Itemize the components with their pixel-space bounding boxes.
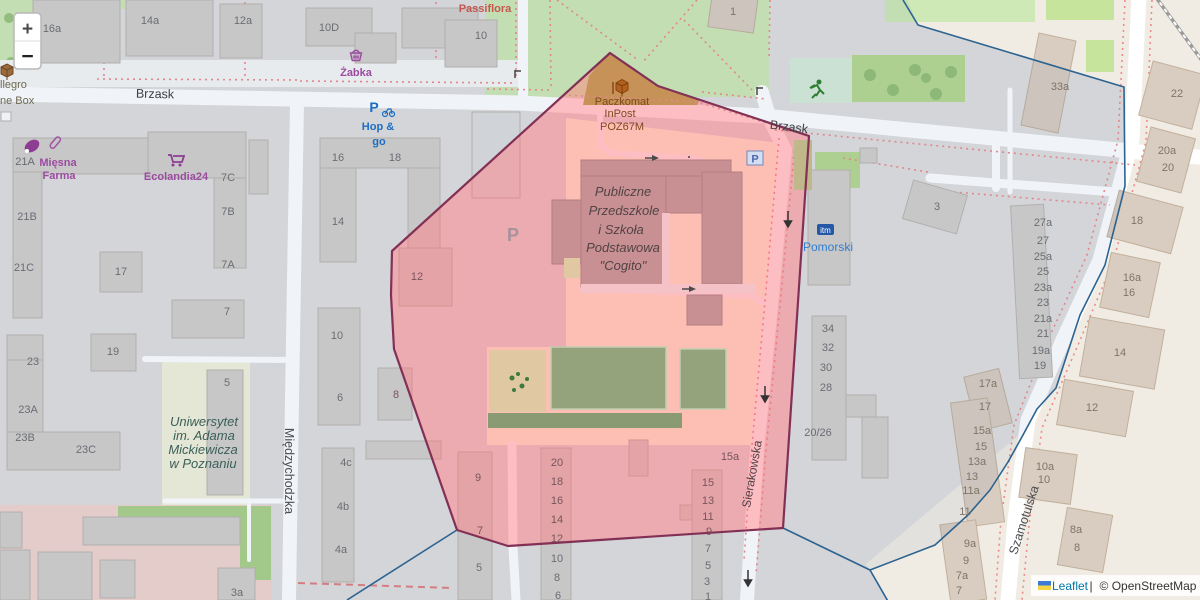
svg-text:4a: 4a [335, 544, 348, 556]
svg-text:14: 14 [551, 514, 563, 526]
svg-text:3: 3 [704, 576, 710, 588]
svg-text:16a: 16a [1123, 272, 1142, 284]
svg-text:POZ67M: POZ67M [600, 121, 644, 133]
svg-text:11a: 11a [962, 485, 980, 497]
svg-text:7a: 7a [956, 570, 969, 582]
svg-text:18: 18 [551, 476, 563, 488]
svg-text:|: | [1089, 579, 1092, 593]
svg-text:Leaflet: Leaflet [1052, 579, 1089, 593]
svg-text:20: 20 [1162, 162, 1174, 174]
svg-text:17a: 17a [979, 378, 998, 390]
svg-text:7B: 7B [221, 206, 234, 218]
svg-text:19: 19 [107, 346, 119, 358]
svg-text:21C: 21C [14, 262, 34, 274]
svg-text:"Cogito": "Cogito" [600, 258, 648, 273]
svg-text:15a: 15a [973, 425, 992, 437]
svg-text:10: 10 [1038, 474, 1050, 486]
svg-text:10D: 10D [319, 22, 339, 34]
svg-text:InPost: InPost [604, 108, 635, 120]
svg-text:1: 1 [730, 6, 736, 18]
svg-text:23: 23 [27, 356, 39, 368]
svg-text:16: 16 [332, 152, 344, 164]
svg-text:28: 28 [820, 382, 832, 394]
svg-text:9: 9 [963, 555, 969, 567]
svg-text:Mickiewicza: Mickiewicza [168, 442, 237, 457]
svg-text:w Poznaniu: w Poznaniu [169, 456, 236, 471]
svg-text:ne Box: ne Box [0, 95, 35, 107]
svg-text:6: 6 [337, 392, 343, 404]
svg-text:8a: 8a [1070, 524, 1083, 536]
svg-text:23A: 23A [18, 404, 38, 416]
svg-text:5: 5 [224, 377, 230, 389]
svg-text:11: 11 [959, 506, 970, 518]
svg-text:1: 1 [705, 591, 711, 600]
svg-text:10: 10 [551, 553, 563, 565]
svg-text:15: 15 [702, 477, 714, 489]
svg-text:18: 18 [1131, 215, 1143, 227]
svg-text:llegro: llegro [0, 79, 27, 91]
svg-text:19a: 19a [1032, 345, 1051, 357]
svg-text:9: 9 [475, 472, 481, 484]
svg-text:6: 6 [555, 590, 561, 600]
svg-text:12: 12 [551, 533, 563, 545]
svg-text:3: 3 [934, 201, 940, 213]
svg-text:7: 7 [956, 585, 962, 597]
svg-text:© OpenStreetMap: © OpenStreetMap [1100, 579, 1197, 593]
svg-text:9a: 9a [964, 538, 977, 550]
svg-text:4b: 4b [337, 501, 349, 513]
svg-text:go: go [372, 136, 386, 148]
svg-text:15a: 15a [721, 451, 740, 463]
svg-text:32: 32 [822, 342, 834, 354]
svg-text:16: 16 [551, 495, 563, 507]
svg-text:8: 8 [393, 389, 399, 401]
svg-text:12a: 12a [234, 15, 253, 27]
svg-text:21A: 21A [15, 156, 35, 168]
svg-text:13a: 13a [968, 456, 987, 468]
svg-text:12: 12 [1086, 402, 1098, 414]
svg-text:16a: 16a [43, 23, 62, 35]
svg-text:34: 34 [822, 323, 834, 335]
svg-text:22: 22 [1171, 88, 1183, 100]
svg-text:Mięsna: Mięsna [39, 157, 77, 169]
svg-text:Passiflora: Passiflora [459, 3, 512, 15]
svg-text:7A: 7A [221, 259, 235, 271]
svg-text:P: P [507, 225, 519, 245]
svg-text:Ecolandia24: Ecolandia24 [144, 171, 209, 183]
svg-text:27: 27 [1037, 235, 1049, 247]
svg-text:8: 8 [1074, 542, 1080, 554]
svg-text:Międzychodzka: Międzychodzka [282, 428, 296, 514]
svg-text:9: 9 [706, 526, 712, 538]
svg-text:7: 7 [477, 525, 483, 537]
svg-text:5: 5 [705, 560, 711, 572]
svg-text:15: 15 [975, 441, 987, 453]
svg-text:Publiczne: Publiczne [595, 184, 651, 199]
svg-text:25: 25 [1037, 266, 1049, 278]
svg-text:11: 11 [702, 511, 713, 523]
svg-text:Paczkomat: Paczkomat [595, 96, 649, 108]
svg-text:25a: 25a [1034, 251, 1053, 263]
svg-text:21a: 21a [1034, 313, 1053, 325]
svg-text:7: 7 [705, 543, 711, 555]
svg-text:Hop &: Hop & [362, 121, 394, 133]
svg-text:P: P [751, 154, 758, 166]
svg-text:20a: 20a [1158, 145, 1177, 157]
svg-text:itm: itm [820, 226, 831, 235]
svg-text:23B: 23B [15, 432, 35, 444]
svg-text:Przedszkole: Przedszkole [589, 203, 660, 218]
svg-text:17: 17 [115, 266, 127, 278]
svg-text:7C: 7C [221, 172, 235, 184]
svg-text:Uniwersytet: Uniwersytet [170, 414, 239, 429]
svg-text:14: 14 [332, 216, 344, 228]
svg-text:10: 10 [475, 30, 487, 42]
svg-text:i Szkoła: i Szkoła [598, 222, 644, 237]
svg-text:Pomorski: Pomorski [803, 240, 853, 254]
svg-text:20/26: 20/26 [804, 427, 832, 439]
svg-text:P: P [369, 99, 378, 115]
svg-text:Żabka: Żabka [340, 66, 373, 79]
svg-text:18: 18 [389, 152, 401, 164]
svg-text:14: 14 [1114, 347, 1126, 359]
svg-text:20: 20 [551, 457, 563, 469]
svg-text:13: 13 [966, 471, 978, 483]
svg-text:Podstawowa: Podstawowa [586, 240, 660, 255]
svg-text:5: 5 [476, 562, 482, 574]
svg-text:23a: 23a [1034, 282, 1053, 294]
svg-text:17: 17 [979, 401, 991, 413]
svg-text:im. Adama: im. Adama [173, 428, 235, 443]
svg-text:10a: 10a [1036, 461, 1055, 473]
svg-text:4c: 4c [340, 457, 352, 469]
svg-text:23C: 23C [76, 444, 96, 456]
svg-text:13: 13 [702, 495, 714, 507]
svg-text:16: 16 [1123, 287, 1135, 299]
svg-text:21B: 21B [17, 211, 37, 223]
svg-text:23: 23 [1037, 297, 1049, 309]
svg-text:30: 30 [820, 362, 832, 374]
svg-text:−: − [21, 45, 33, 68]
svg-text:3a: 3a [231, 587, 244, 599]
svg-text:27a: 27a [1034, 217, 1053, 229]
svg-text:21: 21 [1037, 328, 1049, 340]
svg-text:Farma: Farma [42, 170, 76, 182]
svg-text:10: 10 [331, 330, 343, 342]
svg-text:7: 7 [224, 306, 230, 318]
svg-text:8: 8 [554, 572, 560, 584]
svg-text:33a: 33a [1051, 81, 1070, 93]
svg-text:+: + [22, 19, 33, 40]
svg-text:12: 12 [411, 271, 423, 283]
svg-text:19: 19 [1034, 360, 1046, 372]
svg-text:Brzask: Brzask [136, 87, 175, 102]
svg-text:14a: 14a [141, 15, 160, 27]
